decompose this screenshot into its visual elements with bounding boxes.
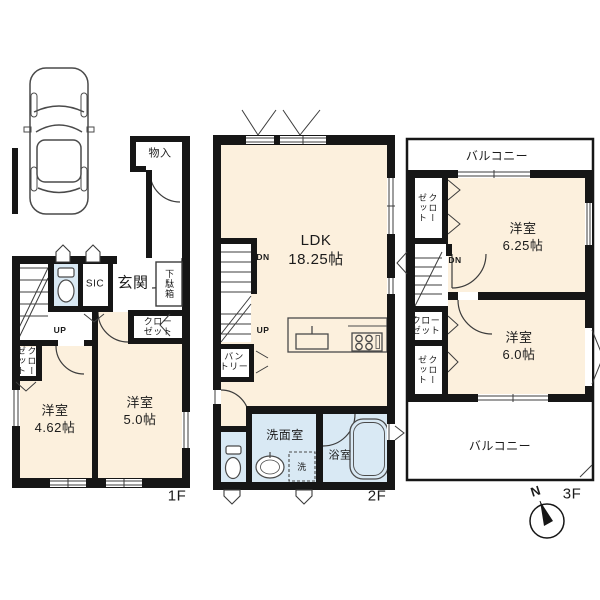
- floor-label-3f: 3F: [563, 485, 582, 502]
- floor-plan: 物入 SIC 玄関 下駄箱 クロー ゼット クローゼット UP 洋室 4.62帖…: [0, 0, 600, 600]
- label-balcony-bottom: バルコニー: [469, 440, 531, 454]
- toilet-2f-icon: [226, 446, 242, 479]
- balcony-corner-mark: [580, 465, 592, 477]
- label-closet-left-1f: クローゼット: [16, 344, 37, 378]
- label-entrance: 玄関: [117, 274, 148, 291]
- label-bedroom1-1f: 洋室 4.62帖: [35, 404, 76, 436]
- label-closet-hall-1f: クロー ゼット: [144, 317, 173, 338]
- ldk-name: LDK: [301, 232, 332, 249]
- label-balcony-top: バルコニー: [466, 150, 528, 164]
- label-up-1f: UP: [54, 326, 67, 336]
- label-bedroom2-1f: 洋室 5.0帖: [123, 396, 156, 428]
- bedroom1-3f-size: 6.25帖: [503, 239, 544, 254]
- label-ldk: LDK 18.25帖: [288, 232, 344, 269]
- compass-icon: [530, 501, 564, 538]
- bedroom2-1f-size: 5.0帖: [123, 413, 156, 428]
- label-laundry: 洗: [297, 462, 307, 472]
- bathtub-icon: [350, 419, 388, 479]
- label-closet-low-3f: クローゼット: [417, 353, 438, 387]
- label-dn-2f: DN: [256, 253, 269, 263]
- bedroom2-1f-name: 洋室: [126, 396, 153, 411]
- label-bedroom2-3f: 洋室 6.0帖: [502, 331, 535, 363]
- label-pantry: バン トリー: [220, 352, 249, 373]
- bedroom2-3f-size: 6.0帖: [502, 348, 535, 363]
- label-bathroom: 浴室: [329, 450, 352, 463]
- label-closet-mid-3f: クロー ゼット: [412, 316, 441, 337]
- label-up-2f: UP: [257, 326, 270, 336]
- car-icon: [24, 68, 94, 214]
- label-washroom: 洗面室: [266, 429, 304, 443]
- stairs-3f: [415, 252, 442, 306]
- label-shoe-box: 下駄箱: [164, 269, 174, 299]
- floor-label-1f: 1F: [168, 487, 187, 504]
- bedroom1-1f-size: 4.62帖: [35, 421, 76, 436]
- label-storage: 物入: [149, 148, 172, 161]
- floor-label-2f: 2F: [368, 487, 387, 504]
- bedroom2-3f-name: 洋室: [505, 331, 532, 346]
- bedroom1-1f-name: 洋室: [41, 404, 68, 419]
- bedroom1-3f-name: 洋室: [509, 222, 536, 237]
- label-sic: SIC: [86, 278, 104, 290]
- toilet-1f-icon: [58, 268, 74, 302]
- label-closet-top-3f: クローゼット: [417, 191, 438, 225]
- label-bedroom1-3f: 洋室 6.25帖: [503, 222, 544, 254]
- label-dn-3f: DN: [448, 256, 461, 266]
- ldk-size: 18.25帖: [288, 251, 344, 268]
- floor-plan-drawing: [0, 0, 600, 600]
